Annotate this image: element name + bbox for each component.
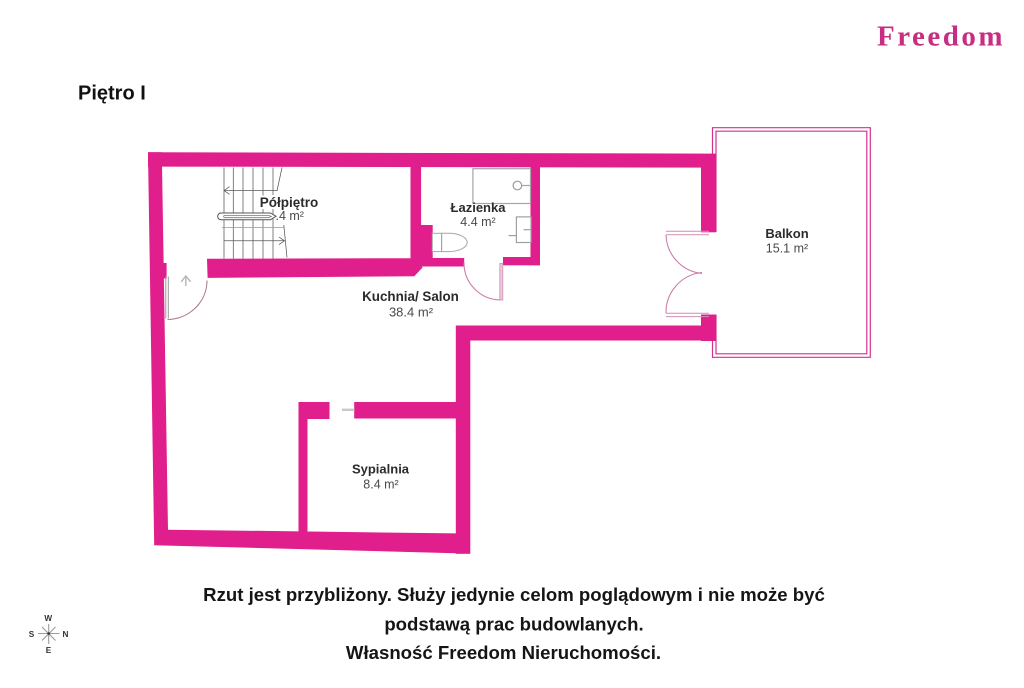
svg-text:E: E [46, 646, 52, 655]
svg-text:Rzut jest przybliżony. Służy j: Rzut jest przybliżony. Służy jedynie cel… [203, 584, 825, 605]
svg-text:W: W [44, 614, 52, 623]
svg-text:4.4 m²: 4.4 m² [460, 215, 495, 229]
svg-text:podstawą prac budowlanych.: podstawą prac budowlanych. [384, 614, 643, 635]
svg-text:N: N [63, 630, 69, 639]
svg-text:15.1 m²: 15.1 m² [766, 242, 808, 256]
svg-text:S: S [29, 630, 35, 639]
svg-text:Freedom: Freedom [877, 21, 1005, 53]
svg-text:Własność Freedom Nieruchomości: Własność Freedom Nieruchomości. [346, 642, 661, 663]
svg-text:Kuchnia/ Salon: Kuchnia/ Salon [362, 289, 459, 304]
svg-text:38.4 m²: 38.4 m² [389, 305, 434, 320]
svg-text:Sypialnia: Sypialnia [352, 462, 410, 477]
svg-text:8.4 m²: 8.4 m² [363, 478, 398, 492]
svg-text:.4 m²: .4 m² [276, 209, 304, 223]
svg-text:Łazienka: Łazienka [451, 200, 507, 215]
svg-text:Balkon: Balkon [765, 226, 808, 241]
svg-text:Piętro I: Piętro I [78, 83, 146, 105]
svg-text:Półpiętro: Półpiętro [260, 195, 319, 210]
